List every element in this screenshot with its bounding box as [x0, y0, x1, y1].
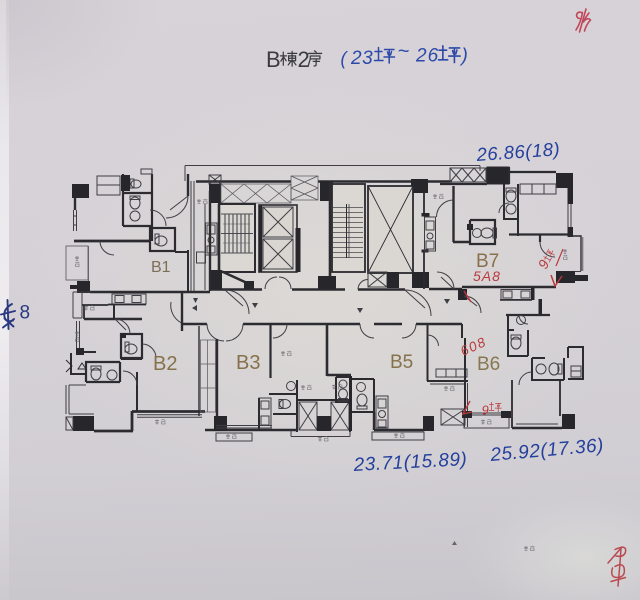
svg-text:9: 9: [482, 403, 489, 418]
svg-text:25.92(17.36): 25.92(17.36): [489, 435, 605, 466]
svg-text:B3: B3: [236, 352, 260, 374]
svg-text:2: 2: [298, 47, 310, 72]
svg-text:B1: B1: [151, 259, 171, 276]
svg-text:26.86(18): 26.86(18): [475, 138, 561, 165]
svg-text:B5: B5: [390, 352, 413, 373]
svg-text:23: 23: [350, 48, 373, 69]
svg-text:26: 26: [415, 46, 439, 67]
svg-text:B6: B6: [477, 354, 500, 375]
svg-text:23.71(15.89): 23.71(15.89): [352, 449, 468, 476]
svg-text:~: ~: [398, 41, 410, 63]
svg-text:(: (: [341, 49, 349, 69]
svg-text:8: 8: [20, 303, 31, 324]
svg-text:5A8: 5A8: [473, 268, 501, 284]
svg-text:B2: B2: [153, 353, 177, 375]
svg-text:B: B: [266, 47, 281, 72]
svg-text:9: 9: [535, 257, 553, 272]
